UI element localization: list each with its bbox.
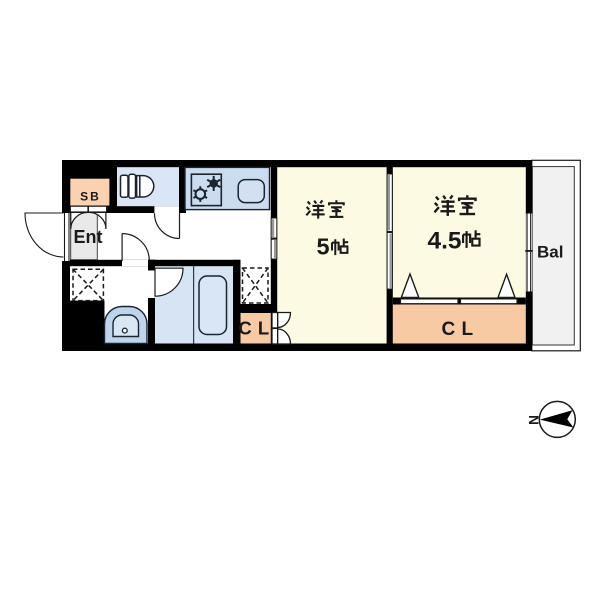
svg-text:4.5: 4.5 (428, 228, 462, 255)
svg-text:C L: C L (441, 319, 473, 340)
svg-text:SB: SB (80, 190, 101, 204)
svg-text:5: 5 (317, 234, 330, 260)
svg-text:Bal: Bal (537, 243, 563, 262)
svg-text:N: N (526, 415, 541, 425)
svg-text:C L: C L (238, 318, 269, 339)
svg-text:Ent: Ent (74, 227, 103, 247)
